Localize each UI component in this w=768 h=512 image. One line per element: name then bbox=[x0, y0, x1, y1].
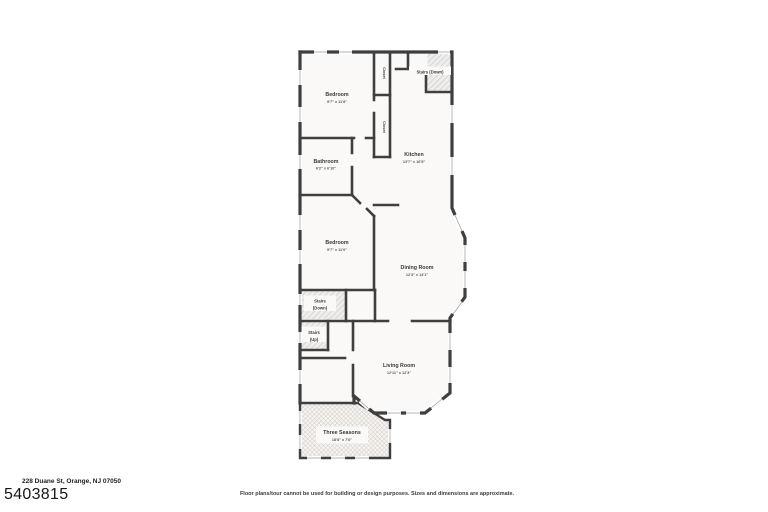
room-dims-living-room: 12'11" x 12'3" bbox=[387, 371, 411, 375]
floorplan-page: Bedroom 9'7" x 11'8" Kitchen 13'7" x 16'… bbox=[0, 0, 768, 512]
room-label-dining-room: Dining Room bbox=[401, 265, 434, 271]
property-address: 228 Duane St, Orange, NJ 07050 bbox=[22, 478, 121, 485]
floorplan-svg: Bedroom 9'7" x 11'8" Kitchen 13'7" x 16'… bbox=[292, 45, 472, 465]
room-label-kitchen: Kitchen bbox=[404, 152, 423, 158]
stairs-down-upper-label: Stairs (Down) bbox=[417, 70, 445, 75]
stairs-up-label-2: (Up) bbox=[310, 337, 319, 342]
room-label-living-room: Living Room bbox=[383, 363, 415, 369]
room-label-three-seasons: Three Seasons bbox=[323, 430, 361, 436]
stairs-down-mid-label-2: (Down) bbox=[313, 306, 328, 311]
room-label-bathroom: Bathroom bbox=[313, 159, 338, 165]
closet-lower-label: Closet bbox=[382, 121, 386, 133]
room-label-bedroom-1: Bedroom bbox=[325, 92, 349, 98]
room-label-bedroom-2: Bedroom bbox=[325, 240, 349, 246]
room-dims-dining-room: 12'3" x 14'1" bbox=[406, 273, 428, 277]
room-dims-kitchen: 13'7" x 16'5" bbox=[403, 160, 425, 164]
stairs-down-mid-label-1: Stairs bbox=[314, 299, 326, 304]
disclaimer-text: Floor plans/tour cannot be used for buil… bbox=[0, 491, 754, 497]
room-dims-bathroom: 6'2" x 6'10" bbox=[316, 167, 336, 171]
floor-areas bbox=[300, 52, 465, 458]
stairs-up-label-1: Stairs bbox=[308, 330, 320, 335]
room-dims-three-seasons: 18'8" x 7'6" bbox=[332, 438, 352, 442]
room-dims-bedroom-2: 9'7" x 11'0" bbox=[327, 248, 347, 252]
room-dims-bedroom-1: 9'7" x 11'8" bbox=[327, 100, 347, 104]
closet-upper-label: Closet bbox=[382, 67, 386, 79]
